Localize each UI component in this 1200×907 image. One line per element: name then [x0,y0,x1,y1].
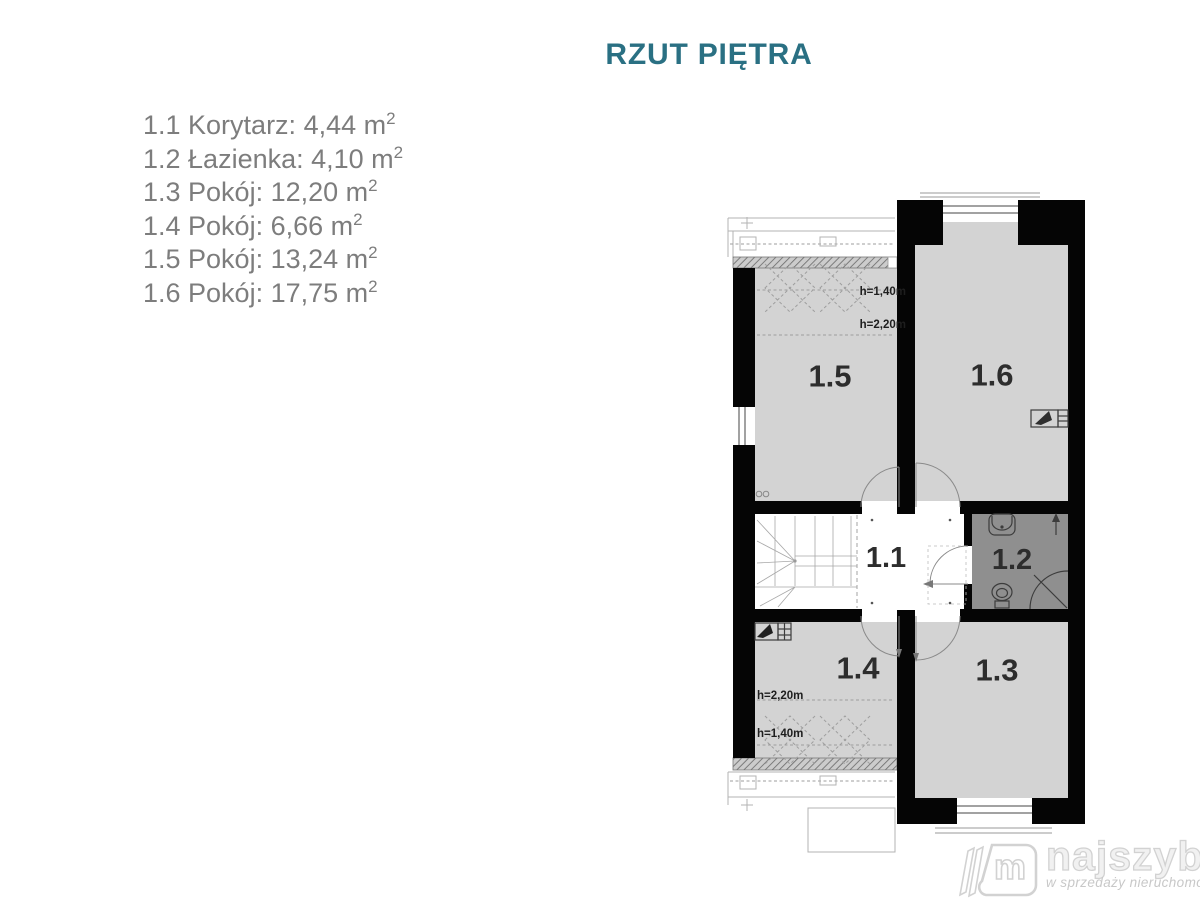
room-1-4-label: 1.4 [836,651,880,686]
room-list-text: 1.2 Łazienka: 4,10 m [143,144,394,174]
area-superscript: 2 [386,109,395,128]
area-superscript: 2 [368,176,377,195]
room-list-text: 1.3 Pokój: 12,20 m [143,177,368,207]
room-list-item: 1.1 Korytarz: 4,44 m2 [143,109,403,143]
area-superscript: 2 [394,143,403,162]
page-title: RZUT PIĘTRA [605,38,812,72]
height-annotation: h=2,20m [860,319,906,331]
room-list-item: 1.5 Pokój: 13,24 m2 [143,243,403,277]
room-list-item: 1.6 Pokój: 17,75 m2 [143,277,403,311]
watermark-logo: m najszybsi w sprzedaży nieruchomości [958,835,1200,899]
room-list-item: 1.2 Łazienka: 4,10 m2 [143,143,403,177]
room-1-3-label: 1.3 [975,653,1018,688]
height-annotation: h=1,40m [860,286,906,298]
floor-plan-drawing: 1.5 1.6 1.1 1.2 1.4 1.3 h=1,40m h=2,20m … [690,185,1120,865]
brand-tagline: w sprzedaży nieruchomości [1046,875,1200,890]
svg-text:m: m [994,846,1026,887]
area-superscript: 2 [353,210,362,229]
area-superscript: 2 [368,277,377,296]
room-list-item: 1.4 Pokój: 6,66 m2 [143,210,403,244]
roof-outline-bottom [728,772,895,852]
room-list-text: 1.1 Korytarz: 4,44 m [143,110,386,140]
height-annotation: h=2,20m [757,690,803,702]
height-annotation: h=1,40m [757,728,803,740]
room-list: 1.1 Korytarz: 4,44 m2 1.2 Łazienka: 4,10… [143,109,403,310]
room-1-5-label: 1.5 [808,359,851,394]
room-list-text: 1.5 Pokój: 13,24 m [143,244,368,274]
logo-text: najszybsi w sprzedaży nieruchomości [1046,835,1200,890]
room-1-6-label: 1.6 [970,358,1013,393]
room-1-2-label: 1.2 [992,544,1032,576]
room-list-text: 1.4 Pokój: 6,66 m [143,211,353,241]
room-1-1-label: 1.1 [866,542,906,574]
page: RZUT PIĘTRA 1.1 Korytarz: 4,44 m2 1.2 Ła… [0,0,1200,907]
roof-outline-top [728,217,895,257]
brand-name: najszybsi [1046,835,1200,877]
room-list-text: 1.6 Pokój: 17,75 m [143,278,368,308]
area-superscript: 2 [368,243,377,262]
room-list-item: 1.3 Pokój: 12,20 m2 [143,176,403,210]
logo-m-icon: m [958,835,1040,899]
window-left [733,407,755,445]
room-1-3-area [915,622,1068,798]
